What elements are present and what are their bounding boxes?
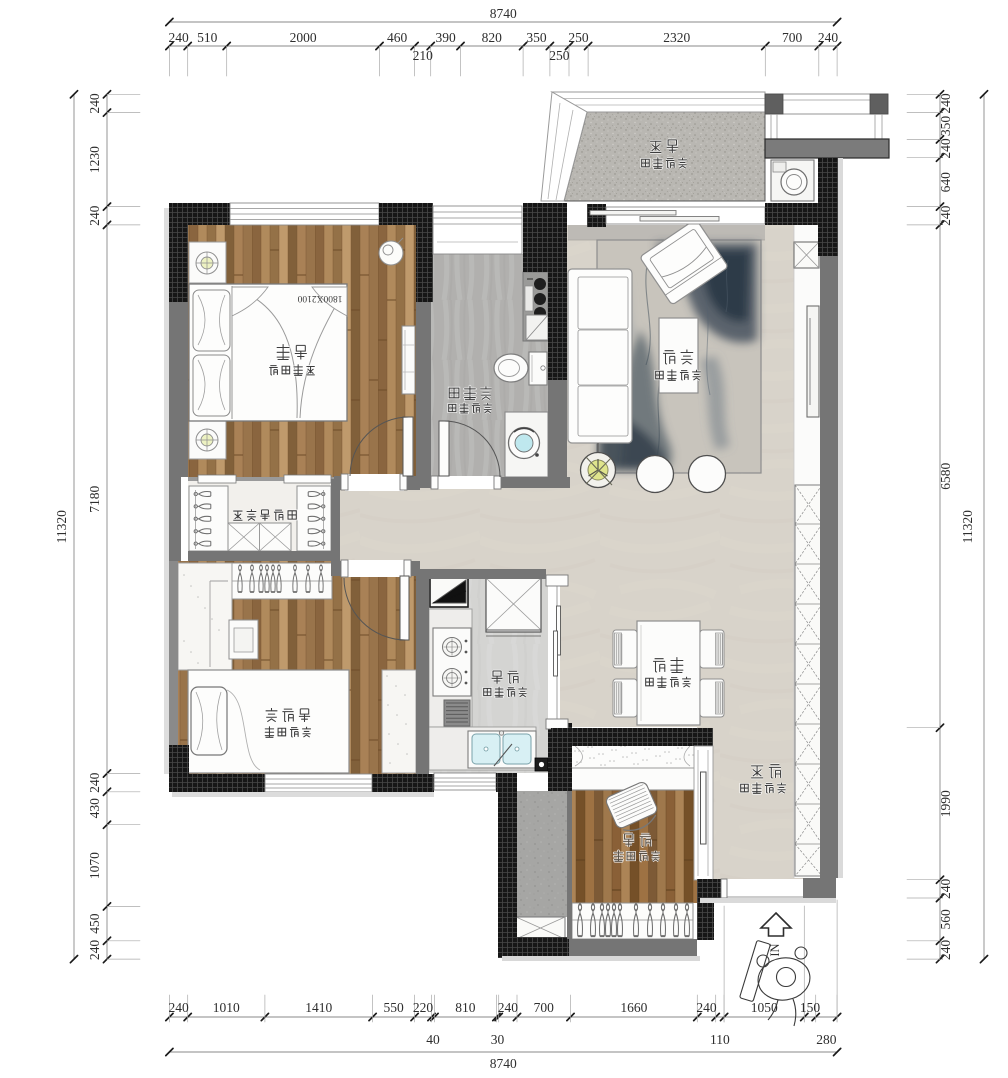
svg-text:390: 390 bbox=[435, 30, 456, 45]
svg-text:280: 280 bbox=[816, 1032, 837, 1047]
svg-text:1410: 1410 bbox=[305, 1000, 332, 1015]
svg-text:700: 700 bbox=[534, 1000, 555, 1015]
svg-text:1010: 1010 bbox=[213, 1000, 240, 1015]
svg-text:8740: 8740 bbox=[490, 6, 517, 21]
svg-text:6580: 6580 bbox=[938, 463, 953, 490]
svg-text:240: 240 bbox=[87, 205, 102, 226]
svg-text:250: 250 bbox=[568, 30, 589, 45]
svg-text:240: 240 bbox=[938, 138, 953, 159]
svg-text:210: 210 bbox=[413, 48, 434, 63]
svg-text:430: 430 bbox=[87, 798, 102, 819]
svg-text:550: 550 bbox=[383, 1000, 404, 1015]
svg-text:2000: 2000 bbox=[290, 30, 317, 45]
svg-text:510: 510 bbox=[197, 30, 218, 45]
svg-text:1800X2100: 1800X2100 bbox=[297, 293, 342, 303]
svg-text:640: 640 bbox=[938, 172, 953, 193]
svg-text:7180: 7180 bbox=[87, 485, 102, 512]
svg-text:240: 240 bbox=[818, 30, 839, 45]
svg-text:240: 240 bbox=[498, 1000, 519, 1015]
svg-text:560: 560 bbox=[938, 909, 953, 930]
svg-text:11320: 11320 bbox=[960, 510, 975, 543]
svg-text:350: 350 bbox=[526, 30, 547, 45]
svg-text:11320: 11320 bbox=[54, 510, 69, 543]
svg-text:220: 220 bbox=[413, 1000, 434, 1015]
svg-text:240: 240 bbox=[87, 940, 102, 961]
svg-text:240: 240 bbox=[938, 93, 953, 114]
svg-text:8740: 8740 bbox=[490, 1056, 517, 1071]
svg-text:1230: 1230 bbox=[87, 146, 102, 173]
svg-text:240: 240 bbox=[938, 205, 953, 226]
svg-text:250: 250 bbox=[549, 48, 570, 63]
svg-text:240: 240 bbox=[938, 879, 953, 900]
svg-text:1660: 1660 bbox=[620, 1000, 647, 1015]
svg-text:1990: 1990 bbox=[938, 790, 953, 817]
svg-text:2320: 2320 bbox=[663, 30, 690, 45]
svg-text:240: 240 bbox=[168, 30, 189, 45]
svg-text:240: 240 bbox=[87, 772, 102, 793]
svg-text:240: 240 bbox=[87, 93, 102, 114]
svg-text:150: 150 bbox=[800, 1000, 821, 1015]
svg-text:30: 30 bbox=[491, 1032, 505, 1047]
svg-text:820: 820 bbox=[482, 30, 503, 45]
svg-text:240: 240 bbox=[938, 940, 953, 961]
svg-text:350: 350 bbox=[938, 116, 953, 137]
svg-text:450: 450 bbox=[87, 913, 102, 934]
svg-text:1050: 1050 bbox=[751, 1000, 778, 1015]
svg-text:240: 240 bbox=[168, 1000, 189, 1015]
svg-text:460: 460 bbox=[387, 30, 408, 45]
svg-text:810: 810 bbox=[455, 1000, 476, 1015]
svg-text:1070: 1070 bbox=[87, 852, 102, 879]
svg-text:IN: IN bbox=[768, 943, 782, 956]
svg-text:240: 240 bbox=[696, 1000, 717, 1015]
svg-text:40: 40 bbox=[426, 1032, 440, 1047]
svg-text:110: 110 bbox=[710, 1032, 730, 1047]
svg-text:700: 700 bbox=[782, 30, 803, 45]
